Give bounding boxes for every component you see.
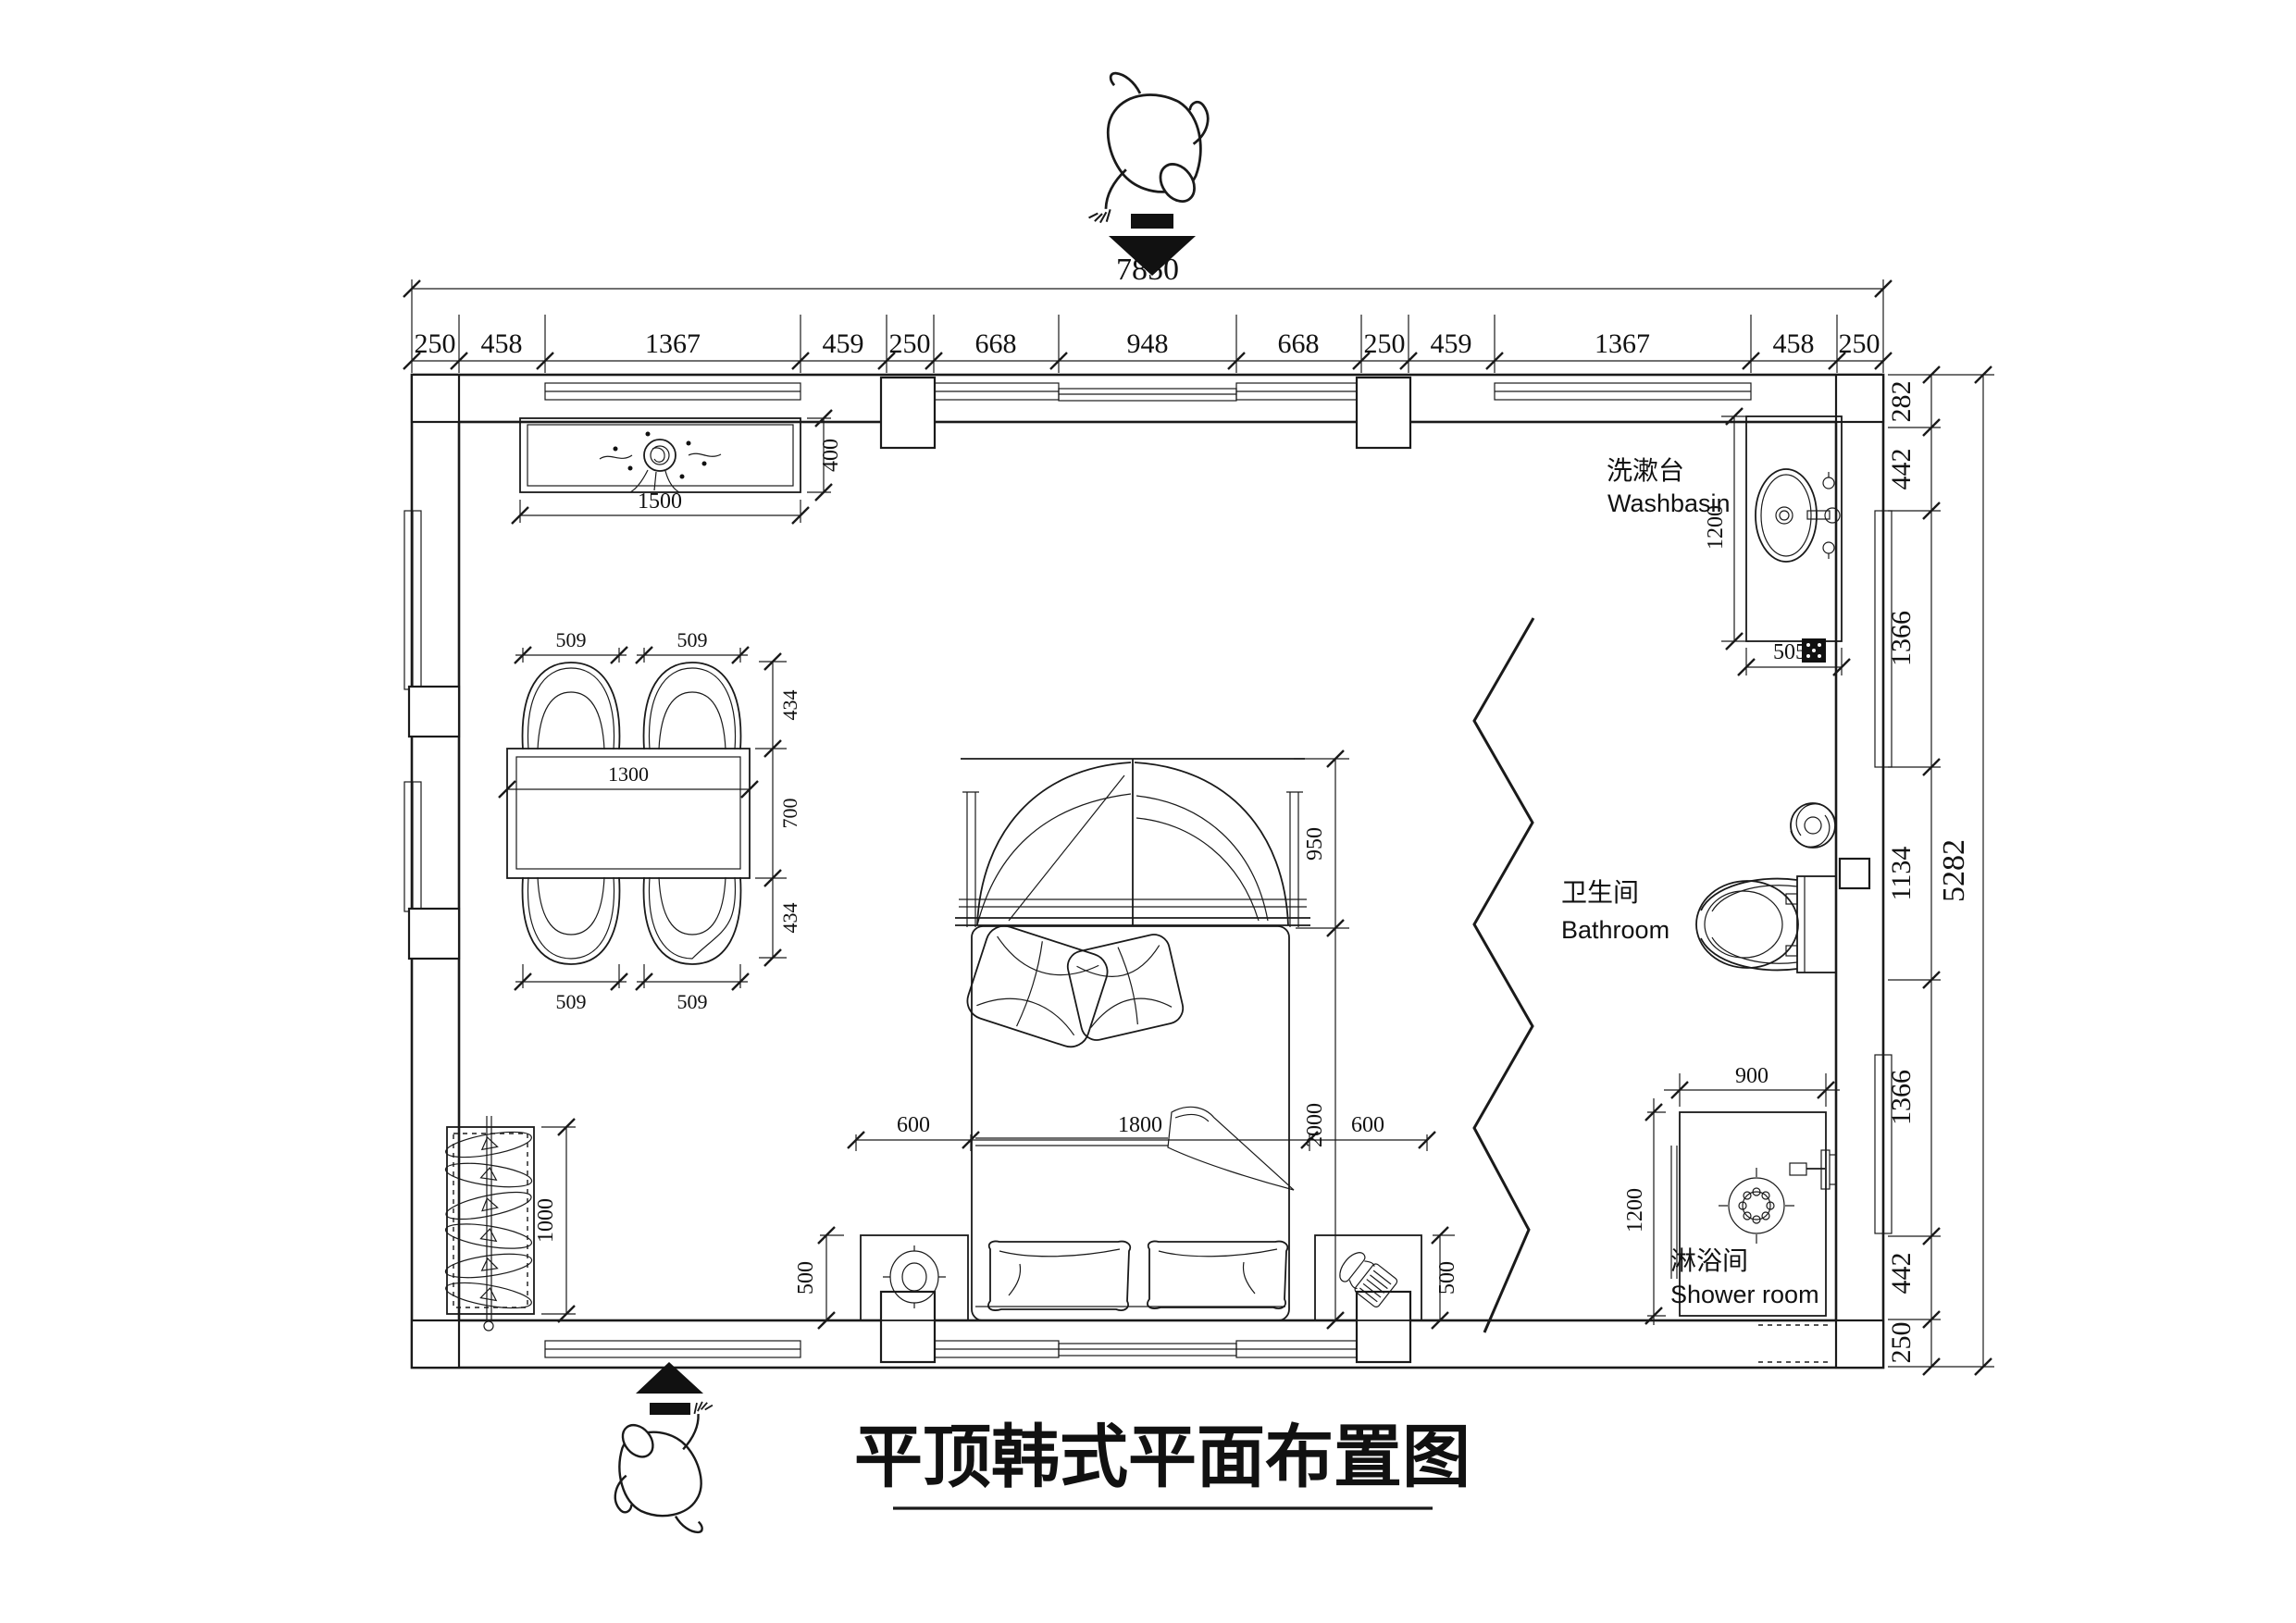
dim-chair-bottom-right: 509: [677, 990, 708, 1013]
drawing-title-text: 平顶韩式平面布置图: [854, 1419, 1471, 1495]
dim-top-7: 668: [1278, 328, 1320, 359]
dim-table-width: 1300: [608, 762, 649, 786]
dim-bed-canopy: 950: [1303, 827, 1327, 861]
bed-pillow-left: [988, 1241, 1130, 1310]
dim-top-2: 1367: [645, 328, 701, 359]
washbasin-vanity: [1746, 416, 1842, 663]
dim-chair-depth-top: 434: [778, 690, 801, 721]
throw-pillow-right: [1064, 932, 1185, 1044]
drawing-title: 平顶韩式平面布置图: [854, 1419, 1471, 1508]
entry-figure-top: [1070, 61, 1221, 276]
cabinet-with-basin: [520, 418, 800, 492]
dim-top-4: 250: [889, 328, 931, 359]
hangers: [444, 1127, 534, 1313]
dim-right-6: 250: [1886, 1322, 1917, 1364]
person-bottom-icon: [599, 1400, 738, 1548]
right-dimension-chain: 5282 282 442 1366 1134 1366 442 250: [1886, 366, 1994, 1375]
dim-bed-width: 1800: [1118, 1113, 1162, 1137]
nightstand-left: [861, 1235, 968, 1320]
wardrobe-rack: 1000: [444, 1116, 576, 1331]
shower-valve-icon: [1790, 1150, 1835, 1189]
exterior-walls: [412, 375, 1883, 1368]
dim-right-4: 1366: [1886, 1070, 1917, 1125]
bathroom-label-en: Bathroom: [1561, 916, 1669, 944]
dim-chair-depth-bottom: 434: [778, 903, 801, 934]
person-top-icon: [1070, 61, 1221, 224]
dim-nightstand-left: 500: [794, 1261, 818, 1295]
dining-set: [507, 663, 750, 964]
dim-bed-length: 2000: [1303, 1103, 1327, 1147]
dim-cabinet-width: 1500: [638, 489, 682, 514]
dim-top-12: 250: [1839, 328, 1880, 359]
dim-top-6: 948: [1127, 328, 1169, 359]
dim-table-depth: 700: [778, 799, 801, 829]
dim-vanity-drain: 505: [1773, 640, 1806, 664]
shower-label-zh: 淋浴间: [1670, 1246, 1748, 1275]
dim-top-0: 250: [415, 328, 456, 359]
floor-plan-page: 7850 250 458 1367 459 250 668 948 668 25…: [0, 0, 2296, 1623]
floor-plan-drawing: 7850 250 458 1367 459 250 668 948 668 25…: [0, 0, 2296, 1623]
bathroom-label-zh: 卫生间: [1561, 878, 1639, 907]
exhaust-fan-icon: [1791, 803, 1835, 848]
wall-columns: [409, 375, 1883, 1368]
dim-top-5: 668: [975, 328, 1017, 359]
bed-canopy: [955, 759, 1310, 927]
dim-right-2: 1366: [1886, 611, 1917, 666]
dim-right-1: 442: [1886, 449, 1917, 490]
dim-nightstand-right: 500: [1435, 1261, 1459, 1295]
window-strips: [404, 383, 1892, 1362]
dim-top-11: 458: [1773, 328, 1815, 359]
dim-top-1: 458: [481, 328, 523, 359]
shower-label-en: Shower room: [1670, 1281, 1819, 1308]
washbasin-label: 洗漱台 Washbasin: [1607, 456, 1731, 517]
dim-chair-top-left: 509: [556, 628, 587, 651]
dim-right-5: 442: [1886, 1253, 1917, 1295]
entry-arrow-bar-top: [1131, 214, 1173, 229]
dim-chair-bottom-left: 509: [556, 990, 587, 1013]
dim-top-8: 250: [1364, 328, 1406, 359]
dim-cabinet-depth: 400: [819, 439, 843, 472]
throw-pillow-left: [962, 922, 1111, 1052]
washbasin-label-en: Washbasin: [1607, 489, 1731, 517]
dim-top-9: 459: [1431, 328, 1472, 359]
folding-partition: [1474, 618, 1533, 1332]
dim-bed-right: 600: [1351, 1113, 1384, 1137]
bed-pillow-right: [1148, 1241, 1287, 1308]
dim-top-10: 1367: [1595, 328, 1650, 359]
dim-top-3: 459: [823, 328, 864, 359]
dim-right-total: 5282: [1937, 839, 1971, 902]
bathroom-label: 卫生间 Bathroom: [1561, 878, 1669, 944]
dim-wardrobe-height: 1000: [534, 1198, 558, 1243]
toilet: [1696, 876, 1836, 973]
dim-shower-width: 900: [1735, 1064, 1769, 1088]
washbasin-label-zh: 洗漱台: [1607, 456, 1684, 485]
dim-chair-top-right: 509: [677, 628, 708, 651]
dim-right-3: 1134: [1886, 847, 1917, 901]
dim-right-0: 282: [1886, 381, 1917, 423]
dim-shower-depth: 1200: [1623, 1188, 1647, 1233]
entry-figure-bottom: [599, 1362, 738, 1548]
shower-head-icon: [1719, 1168, 1794, 1244]
entry-arrow-bar-bottom: [650, 1403, 690, 1415]
shower-label: 淋浴间 Shower room: [1670, 1246, 1819, 1308]
dim-bed-left: 600: [897, 1113, 930, 1137]
